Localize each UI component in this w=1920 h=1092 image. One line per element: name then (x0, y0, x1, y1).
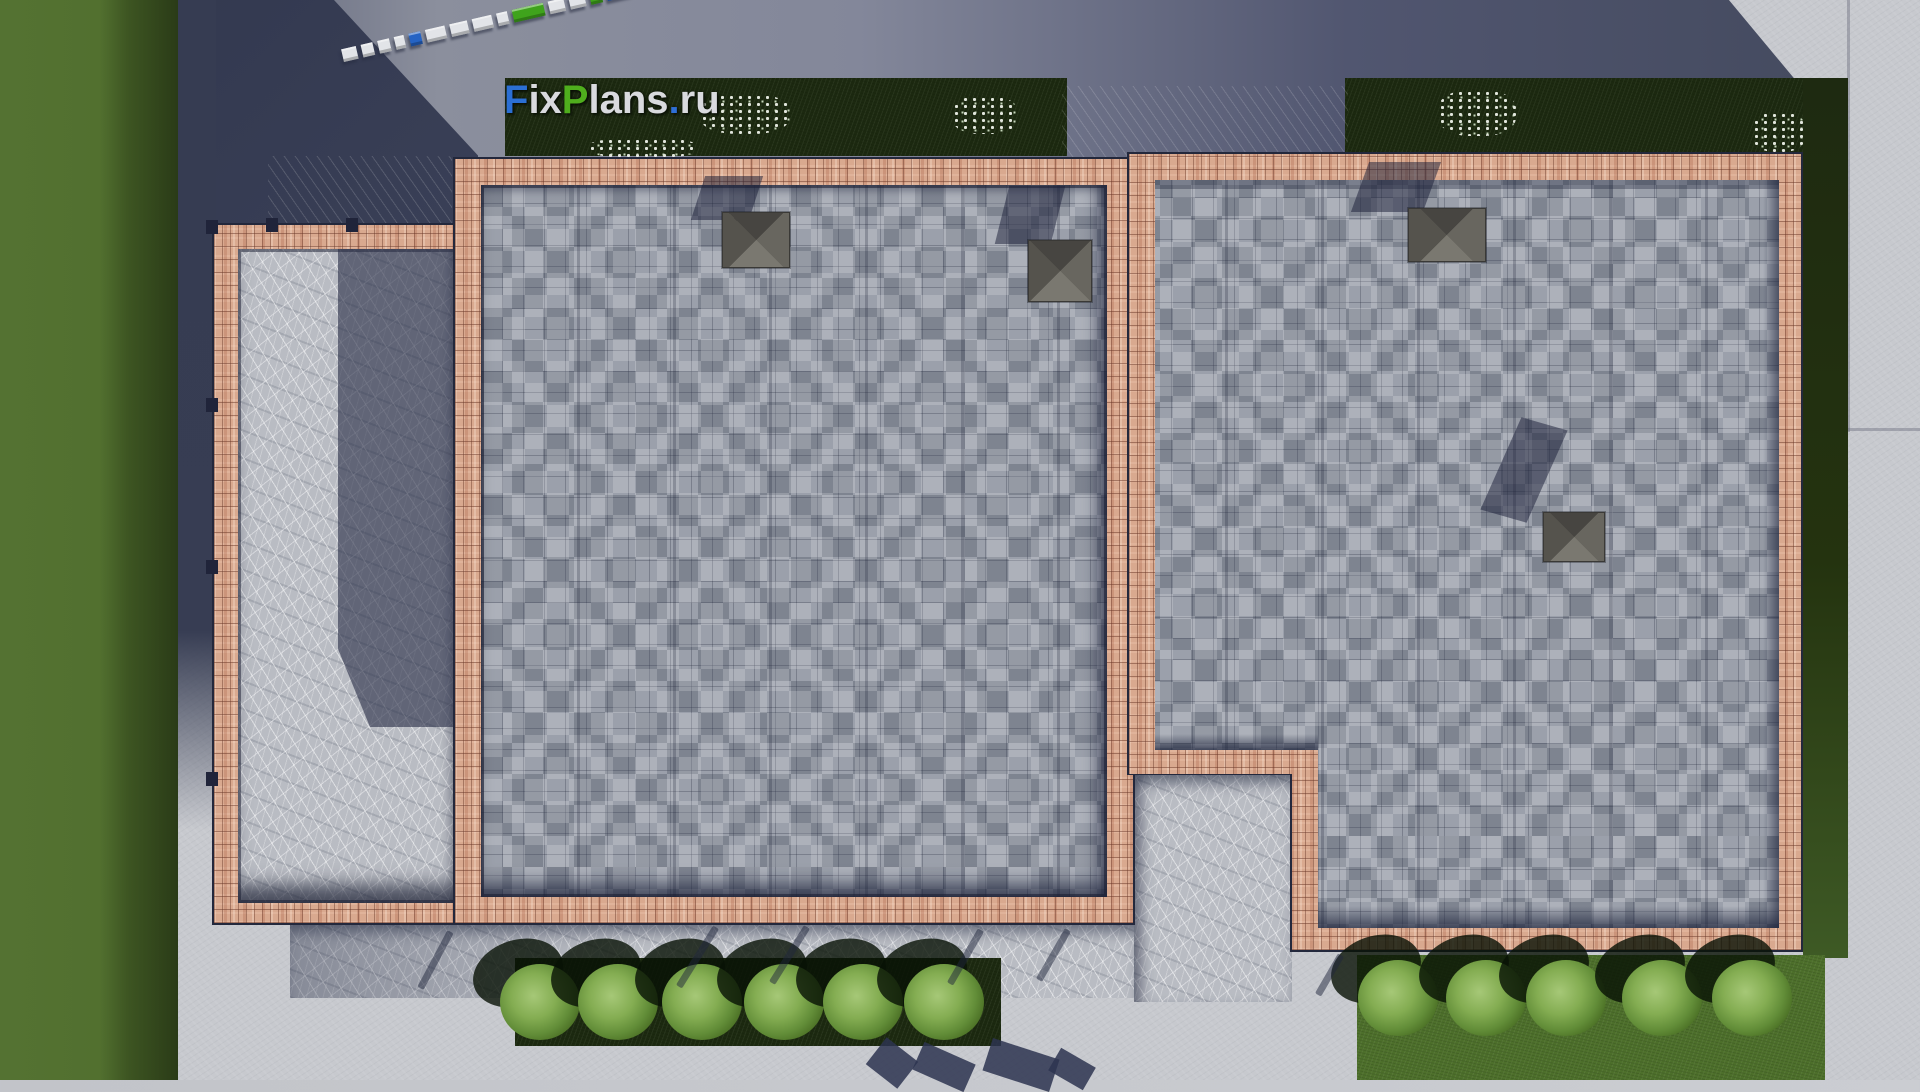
logo-3d-block-white (394, 35, 407, 50)
parapet-inner-shadow (1155, 734, 1318, 750)
lawn-right (1357, 955, 1825, 1080)
chimney-vent (1408, 208, 1486, 262)
bush (904, 964, 984, 1040)
flower-cluster (1752, 112, 1806, 152)
parapet-post (266, 218, 278, 232)
bush (1526, 960, 1606, 1036)
fixplans-watermark-logo: FixPlans.ru (504, 80, 720, 120)
logo-3d-block-white (361, 42, 376, 57)
hedge-bottom (515, 958, 1001, 1046)
shingle-field-left (481, 185, 1107, 897)
concrete-joint-horizontal (1847, 428, 1920, 431)
parapet-post (206, 220, 218, 234)
parapet-inner-shadow (1318, 906, 1779, 928)
chimney-vent (1543, 512, 1605, 562)
flower-cluster (952, 96, 1018, 134)
parapet-post (206, 560, 218, 574)
watermark-letter: P (562, 78, 589, 122)
parapet-post (346, 218, 358, 232)
parapet-inner-shadow (1763, 180, 1779, 928)
courtyard-walkway (1134, 772, 1292, 1002)
logo-3d-block-blue (408, 31, 423, 46)
roof-plan-render: { "watermark": { "text": "FixPlans.ru", … (0, 0, 1920, 1080)
logo-3d-block-white (496, 11, 510, 26)
chimney-vent (722, 212, 790, 268)
parapet-post (206, 772, 218, 786)
stairs-left-shadowed (268, 156, 452, 228)
flower-cluster (588, 138, 698, 158)
stairs-top-entrance (1062, 86, 1348, 158)
lawn-left (0, 0, 178, 1080)
parapet-inner-shadow (1155, 180, 1779, 189)
logo-3d-block-white (377, 38, 392, 53)
terrace-wall-shadow (238, 249, 456, 903)
watermark-letter: ru (680, 78, 720, 122)
chimney-vent (1028, 240, 1092, 302)
hedge-right-side (1803, 78, 1848, 958)
terrace-floor (238, 249, 456, 903)
watermark-letter: ix (528, 78, 561, 122)
terrace-annex (212, 223, 478, 925)
building-shadow-left-strip (178, 0, 216, 830)
watermark-letter: F (504, 78, 528, 122)
flower-cluster (1438, 90, 1516, 136)
watermark-letter: . (669, 78, 680, 122)
watermark-letter: lans (588, 78, 668, 122)
parapet-post (206, 398, 218, 412)
bush (1712, 960, 1792, 1036)
